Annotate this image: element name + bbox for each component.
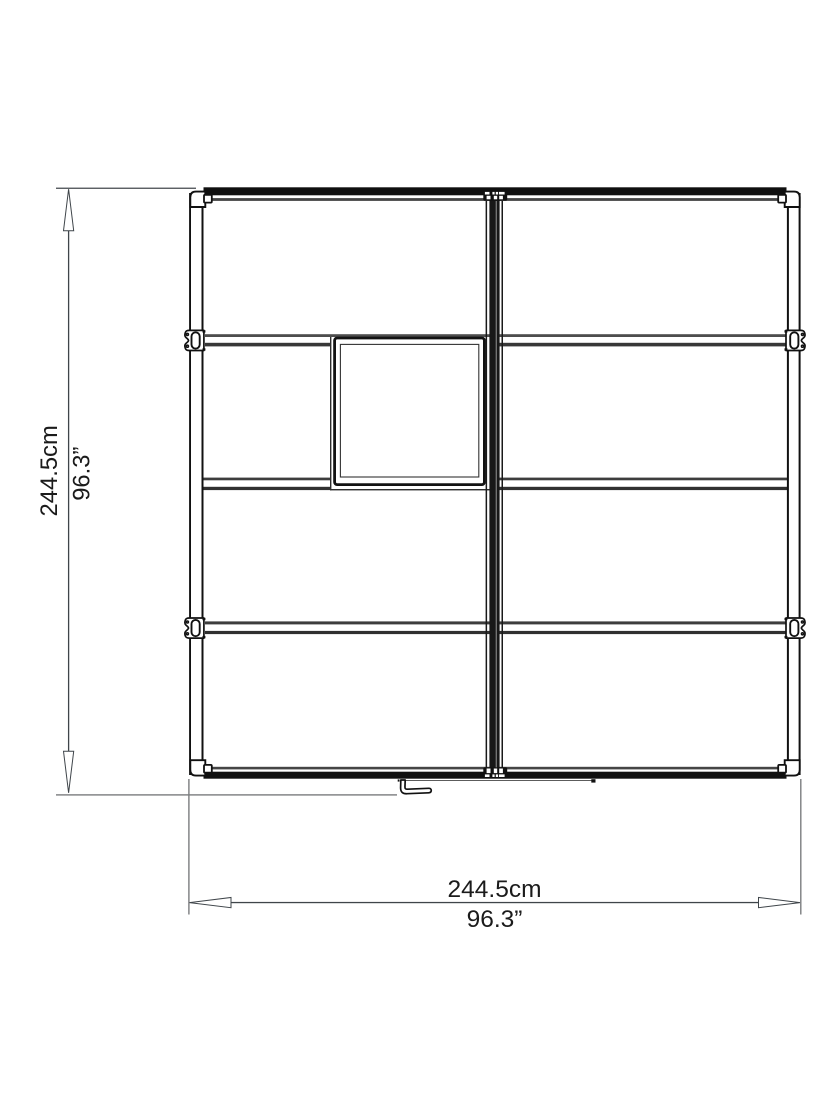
svg-text:96.3”: 96.3”	[69, 446, 96, 500]
svg-text:244.5cm: 244.5cm	[36, 425, 63, 516]
svg-text:244.5cm: 244.5cm	[448, 876, 542, 903]
svg-text:96.3”: 96.3”	[467, 906, 523, 933]
